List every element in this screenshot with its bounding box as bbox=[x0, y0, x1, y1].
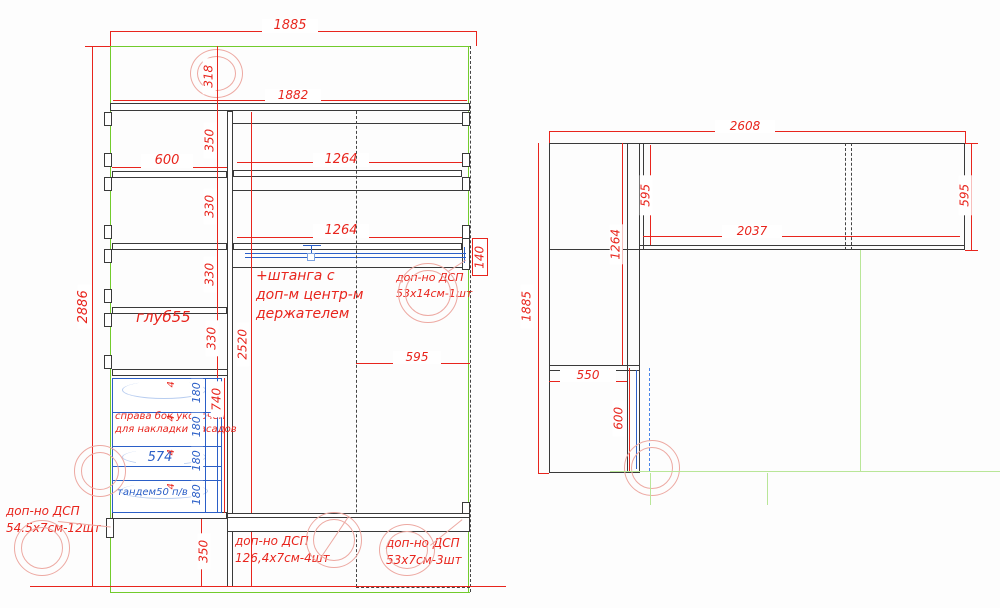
column-division bbox=[549, 365, 640, 366]
rod-center-holder-clip bbox=[307, 253, 315, 261]
dim-label-330: 330 bbox=[206, 320, 219, 356]
dsp-left-note-line1: доп-но ДСП bbox=[6, 505, 80, 519]
room-outline-top bbox=[110, 46, 470, 47]
dim-ext-595-right-top bbox=[965, 143, 978, 144]
dim-label-1264-top: 1264 bbox=[313, 153, 369, 167]
rod-note-line1: +штанга с bbox=[256, 268, 335, 284]
marker-circle bbox=[405, 270, 451, 316]
dim-line-2037 bbox=[643, 236, 960, 237]
rod-note-line2: доп-м центр-м bbox=[256, 287, 363, 303]
dim-label-2608: 2608 bbox=[715, 120, 775, 133]
gap-label-4: 4 bbox=[167, 378, 178, 390]
dim-label-318: 318 bbox=[203, 58, 216, 94]
dim-label-2520: 2520 bbox=[237, 322, 250, 366]
dim-label-180: 180 bbox=[191, 413, 203, 441]
marker-circle bbox=[81, 452, 119, 490]
marker-circle bbox=[21, 527, 63, 569]
right-wall-tab bbox=[462, 225, 470, 239]
wall-guide-tick bbox=[767, 473, 768, 505]
dim-line-180 bbox=[205, 378, 206, 513]
dim-label-595: 595 bbox=[393, 351, 441, 364]
dim-label-180: 180 bbox=[191, 447, 203, 475]
dim-label-2037: 2037 bbox=[722, 225, 782, 238]
depth-label: глуб55 bbox=[136, 309, 191, 326]
dim-label-330: 330 bbox=[204, 256, 217, 292]
dim-ext-595-right-bottom bbox=[965, 250, 978, 251]
left-col-bottom-panel bbox=[112, 512, 227, 519]
dim-label-1885-side: 1885 bbox=[521, 284, 534, 328]
left-wall-tab bbox=[104, 177, 112, 191]
dim-ext-1885-right bbox=[476, 31, 477, 46]
shelf-band bbox=[112, 171, 227, 178]
drawer-top-shelf bbox=[112, 369, 233, 376]
dim-label-330: 330 bbox=[204, 188, 217, 224]
dim-ext-2886-top bbox=[85, 46, 110, 47]
dim-label-1882: 1882 bbox=[265, 89, 321, 102]
left-wall-tab bbox=[104, 355, 112, 369]
dim-ext-1885-bottom bbox=[538, 473, 549, 474]
wall-guide-tick bbox=[650, 473, 651, 505]
dim-label-595-right: 595 bbox=[959, 175, 972, 215]
marker-circle bbox=[386, 531, 428, 569]
left-wall-tab bbox=[104, 225, 112, 239]
gap-label-4: 4 bbox=[167, 446, 178, 458]
marker-circle bbox=[313, 519, 355, 561]
left-wall-tab bbox=[104, 153, 112, 167]
dim-label-1264: 1264 bbox=[610, 224, 623, 264]
dim-line-318 bbox=[217, 46, 218, 103]
fasad-note-line2: для накладки фасадов bbox=[115, 424, 237, 436]
dim-label-1264-rod: 1264 bbox=[313, 224, 369, 238]
dim-label-2886: 2886 bbox=[77, 285, 91, 329]
dsp-mid-note-line1: доп-но ДСП bbox=[235, 535, 309, 549]
base-dashed-line bbox=[356, 587, 470, 588]
dim-label-140: 140 bbox=[474, 239, 487, 275]
dim-label-180: 180 bbox=[191, 379, 203, 407]
shelf-apron-line bbox=[233, 190, 462, 191]
rod-note-line3: держателем bbox=[256, 306, 349, 322]
left-wall-tab bbox=[104, 249, 112, 263]
column-inner-wall bbox=[627, 143, 628, 473]
dim-ext-2608-left bbox=[549, 131, 550, 143]
dim-label-180: 180 bbox=[191, 481, 203, 509]
dim-label-350: 350 bbox=[204, 122, 217, 158]
wall-guide-vertical bbox=[860, 250, 861, 471]
right-wall-tab bbox=[462, 153, 470, 167]
dim-label-595-left: 595 bbox=[640, 175, 653, 215]
right-wall-tab bbox=[462, 177, 470, 191]
left-wall-tab bbox=[104, 112, 112, 126]
wardrobe-top-panel bbox=[110, 103, 470, 111]
right-wall-tab bbox=[462, 112, 470, 126]
shelf-band bbox=[112, 243, 227, 250]
top-apron-line bbox=[233, 123, 462, 124]
left-wall-tab bbox=[104, 313, 112, 327]
dim-label-600-side: 600 bbox=[613, 400, 626, 436]
mezzanine-dashed-joint bbox=[851, 143, 852, 250]
gap-label-4: 4 bbox=[167, 480, 178, 492]
wall-guide-horizontal bbox=[610, 471, 1000, 472]
marker-circle bbox=[631, 447, 673, 489]
mezzanine-inner-bottom bbox=[640, 245, 965, 246]
dim-line-2886 bbox=[92, 46, 93, 586]
dim-ext-1885-left bbox=[110, 31, 111, 46]
base-red-line bbox=[30, 586, 506, 587]
dim-label-740: 740 bbox=[211, 381, 224, 417]
dim-label-1885: 1885 bbox=[262, 19, 318, 33]
dim-line-740 bbox=[224, 378, 225, 513]
left-leg bbox=[106, 518, 114, 538]
dim-line-1885 bbox=[538, 143, 539, 473]
gap-label-4: 4 bbox=[167, 412, 178, 424]
room-outline-bottom bbox=[110, 592, 470, 593]
dim-label-600: 600 bbox=[141, 154, 193, 168]
rod-shelf-band bbox=[233, 243, 462, 250]
dim-label-350-bottom: 350 bbox=[198, 533, 211, 569]
dim-label-550: 550 bbox=[560, 369, 616, 382]
shelf-band bbox=[233, 170, 462, 177]
mezzanine-dashed-joint bbox=[845, 143, 846, 250]
cad-drawing-canvas: 1885 2886 318 1882 1264 1264 bbox=[0, 0, 1000, 608]
left-wall-tab bbox=[104, 289, 112, 303]
rod-center-holder bbox=[303, 245, 321, 246]
room-outline-right-dashed bbox=[470, 46, 471, 592]
dim-ext-2608-right bbox=[965, 131, 966, 143]
